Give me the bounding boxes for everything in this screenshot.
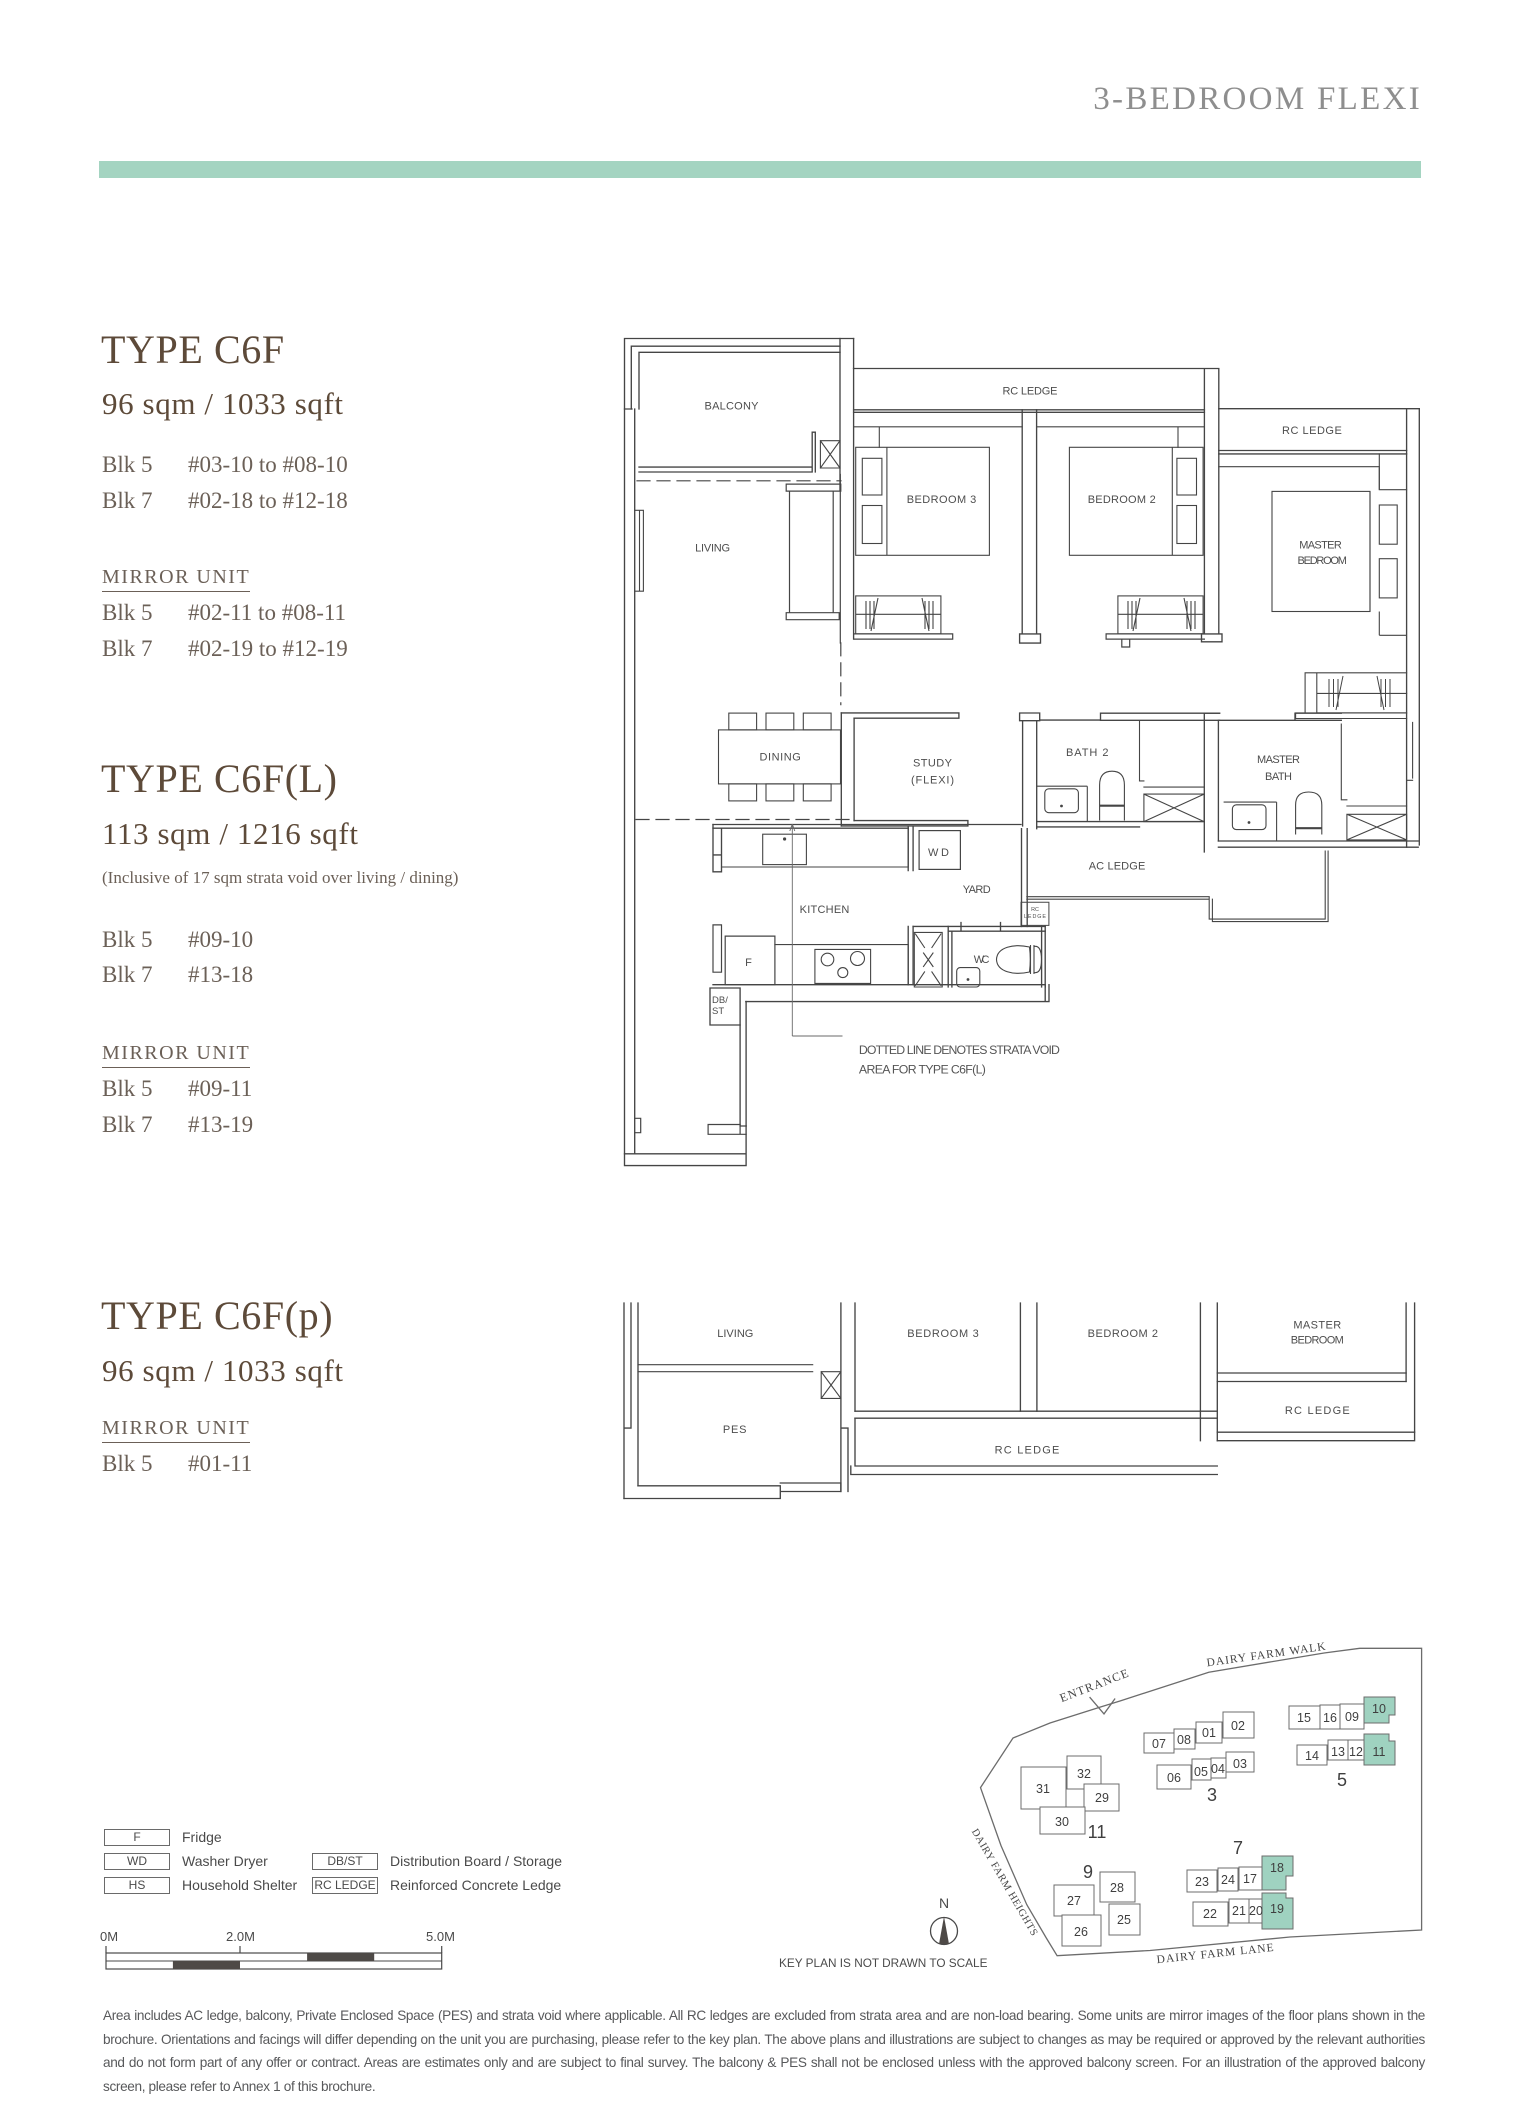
svg-text:27: 27 [1067,1894,1081,1908]
svg-text:BEDROOM 2: BEDROOM 2 [1088,494,1156,506]
svg-text:09: 09 [1345,1710,1359,1724]
svg-text:AREA FOR TYPE C6F(L): AREA FOR TYPE C6F(L) [859,1063,986,1077]
svg-text:15: 15 [1297,1711,1311,1725]
svg-text:RC LEDGE: RC LEDGE [1282,425,1342,437]
svg-text:BALCONY: BALCONY [705,400,760,412]
svg-text:DAIRY FARM LANE: DAIRY FARM LANE [1156,1942,1275,1966]
svg-text:DOTTED LINE DENOTES STRATA VOI: DOTTED LINE DENOTES STRATA VOID [859,1043,1060,1057]
svg-text:21: 21 [1232,1904,1246,1918]
svg-text:31: 31 [1036,1782,1050,1796]
svg-text:WD: WD [928,847,949,859]
svg-text:17: 17 [1243,1872,1257,1886]
svg-text:N: N [939,1895,949,1911]
svg-text:5: 5 [1337,1770,1347,1790]
svg-text:BEDROOM 2: BEDROOM 2 [1088,1328,1158,1340]
svg-text:5.0M: 5.0M [426,1929,455,1944]
svg-text:WC: WC [974,954,990,966]
svg-text:20: 20 [1249,1904,1263,1918]
svg-text:LIVING: LIVING [717,1328,753,1340]
svg-text:BATH: BATH [1265,771,1292,783]
svg-text:(FLEXI): (FLEXI) [911,775,954,787]
svg-text:02: 02 [1231,1719,1245,1733]
svg-text:24: 24 [1221,1873,1235,1887]
svg-text:MASTER: MASTER [1257,754,1300,766]
svg-text:29: 29 [1095,1791,1109,1805]
svg-text:DB/: DB/ [712,995,728,1006]
svg-text:BEDROOM: BEDROOM [1298,555,1347,567]
svg-text:LEDGE: LEDGE [1024,914,1046,920]
svg-text:22: 22 [1203,1907,1217,1921]
svg-text:19: 19 [1270,1902,1284,1916]
svg-text:13: 13 [1331,1745,1345,1759]
svg-text:16: 16 [1323,1711,1337,1725]
svg-text:04: 04 [1211,1762,1225,1776]
svg-text:RC LEDGE: RC LEDGE [995,1445,1060,1457]
svg-text:DAIRY FARM WALK: DAIRY FARM WALK [1206,1641,1327,1670]
svg-text:08: 08 [1177,1733,1191,1747]
svg-text:07: 07 [1152,1737,1166,1751]
svg-text:F: F [745,957,752,969]
svg-text:05: 05 [1194,1765,1208,1779]
svg-text:28: 28 [1110,1881,1124,1895]
svg-text:BEDROOM 3: BEDROOM 3 [907,494,977,506]
svg-text:BEDROOM 3: BEDROOM 3 [907,1328,979,1340]
svg-text:9: 9 [1083,1862,1093,1882]
svg-text:26: 26 [1074,1925,1088,1939]
svg-text:DAIRY FARM HEIGHTS: DAIRY FARM HEIGHTS [969,1827,1040,1938]
svg-text:30: 30 [1055,1815,1069,1829]
svg-text:ST: ST [712,1006,724,1017]
svg-text:BATH 2: BATH 2 [1066,747,1109,759]
svg-text:18: 18 [1270,1861,1284,1875]
svg-text:06: 06 [1167,1771,1181,1785]
svg-text:BEDROOM: BEDROOM [1291,1335,1344,1347]
svg-text:0M: 0M [100,1929,118,1944]
svg-text:RC: RC [1031,907,1039,913]
svg-text:03: 03 [1233,1757,1247,1771]
svg-text:MASTER: MASTER [1293,1320,1341,1332]
svg-text:3: 3 [1207,1785,1217,1805]
svg-text:32: 32 [1077,1767,1091,1781]
svg-text:MASTER: MASTER [1299,539,1342,551]
svg-text:RC LEDGE: RC LEDGE [1285,1405,1350,1417]
svg-text:10: 10 [1372,1702,1386,1716]
svg-text:YARD: YARD [963,884,991,896]
svg-text:AC LEDGE: AC LEDGE [1089,860,1146,872]
svg-text:LIVING: LIVING [695,542,730,554]
svg-text:7: 7 [1233,1838,1243,1858]
svg-text:RC LEDGE: RC LEDGE [1003,385,1058,397]
svg-text:12: 12 [1349,1745,1363,1759]
svg-text:25: 25 [1117,1913,1131,1927]
svg-text:11: 11 [1373,1745,1386,1759]
svg-text:23: 23 [1195,1875,1209,1889]
svg-text:DINING: DINING [760,751,801,763]
svg-text:PES: PES [723,1424,747,1436]
svg-text:KITCHEN: KITCHEN [800,904,850,916]
svg-text:ENTRANCE: ENTRANCE [1058,1666,1132,1705]
svg-text:11: 11 [1088,1822,1107,1842]
svg-text:14: 14 [1305,1749,1319,1763]
svg-text:01: 01 [1202,1726,1216,1740]
svg-text:2.0M: 2.0M [226,1929,255,1944]
svg-text:STUDY: STUDY [913,757,953,769]
